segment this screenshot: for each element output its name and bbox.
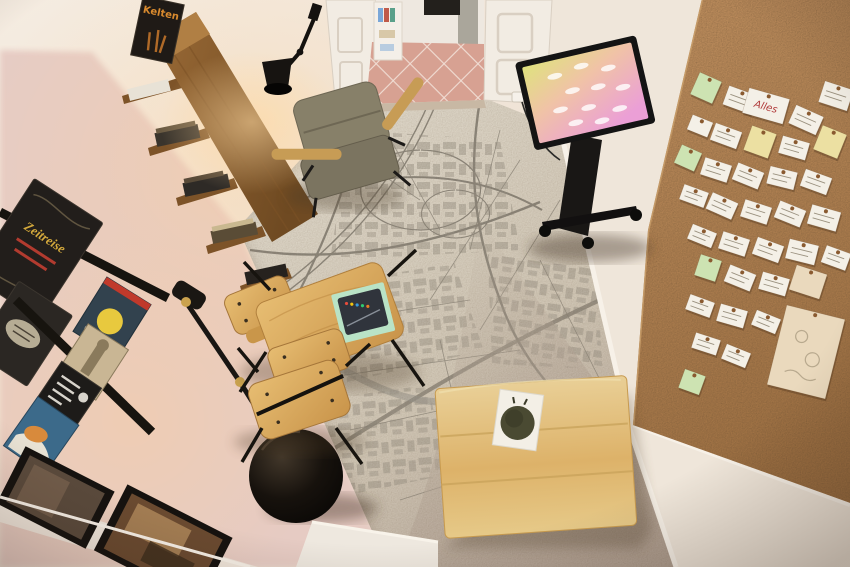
vignette (0, 0, 850, 567)
room-photo: deponie Müll- (0, 0, 850, 567)
scene-canvas: deponie Müll- (0, 0, 850, 567)
